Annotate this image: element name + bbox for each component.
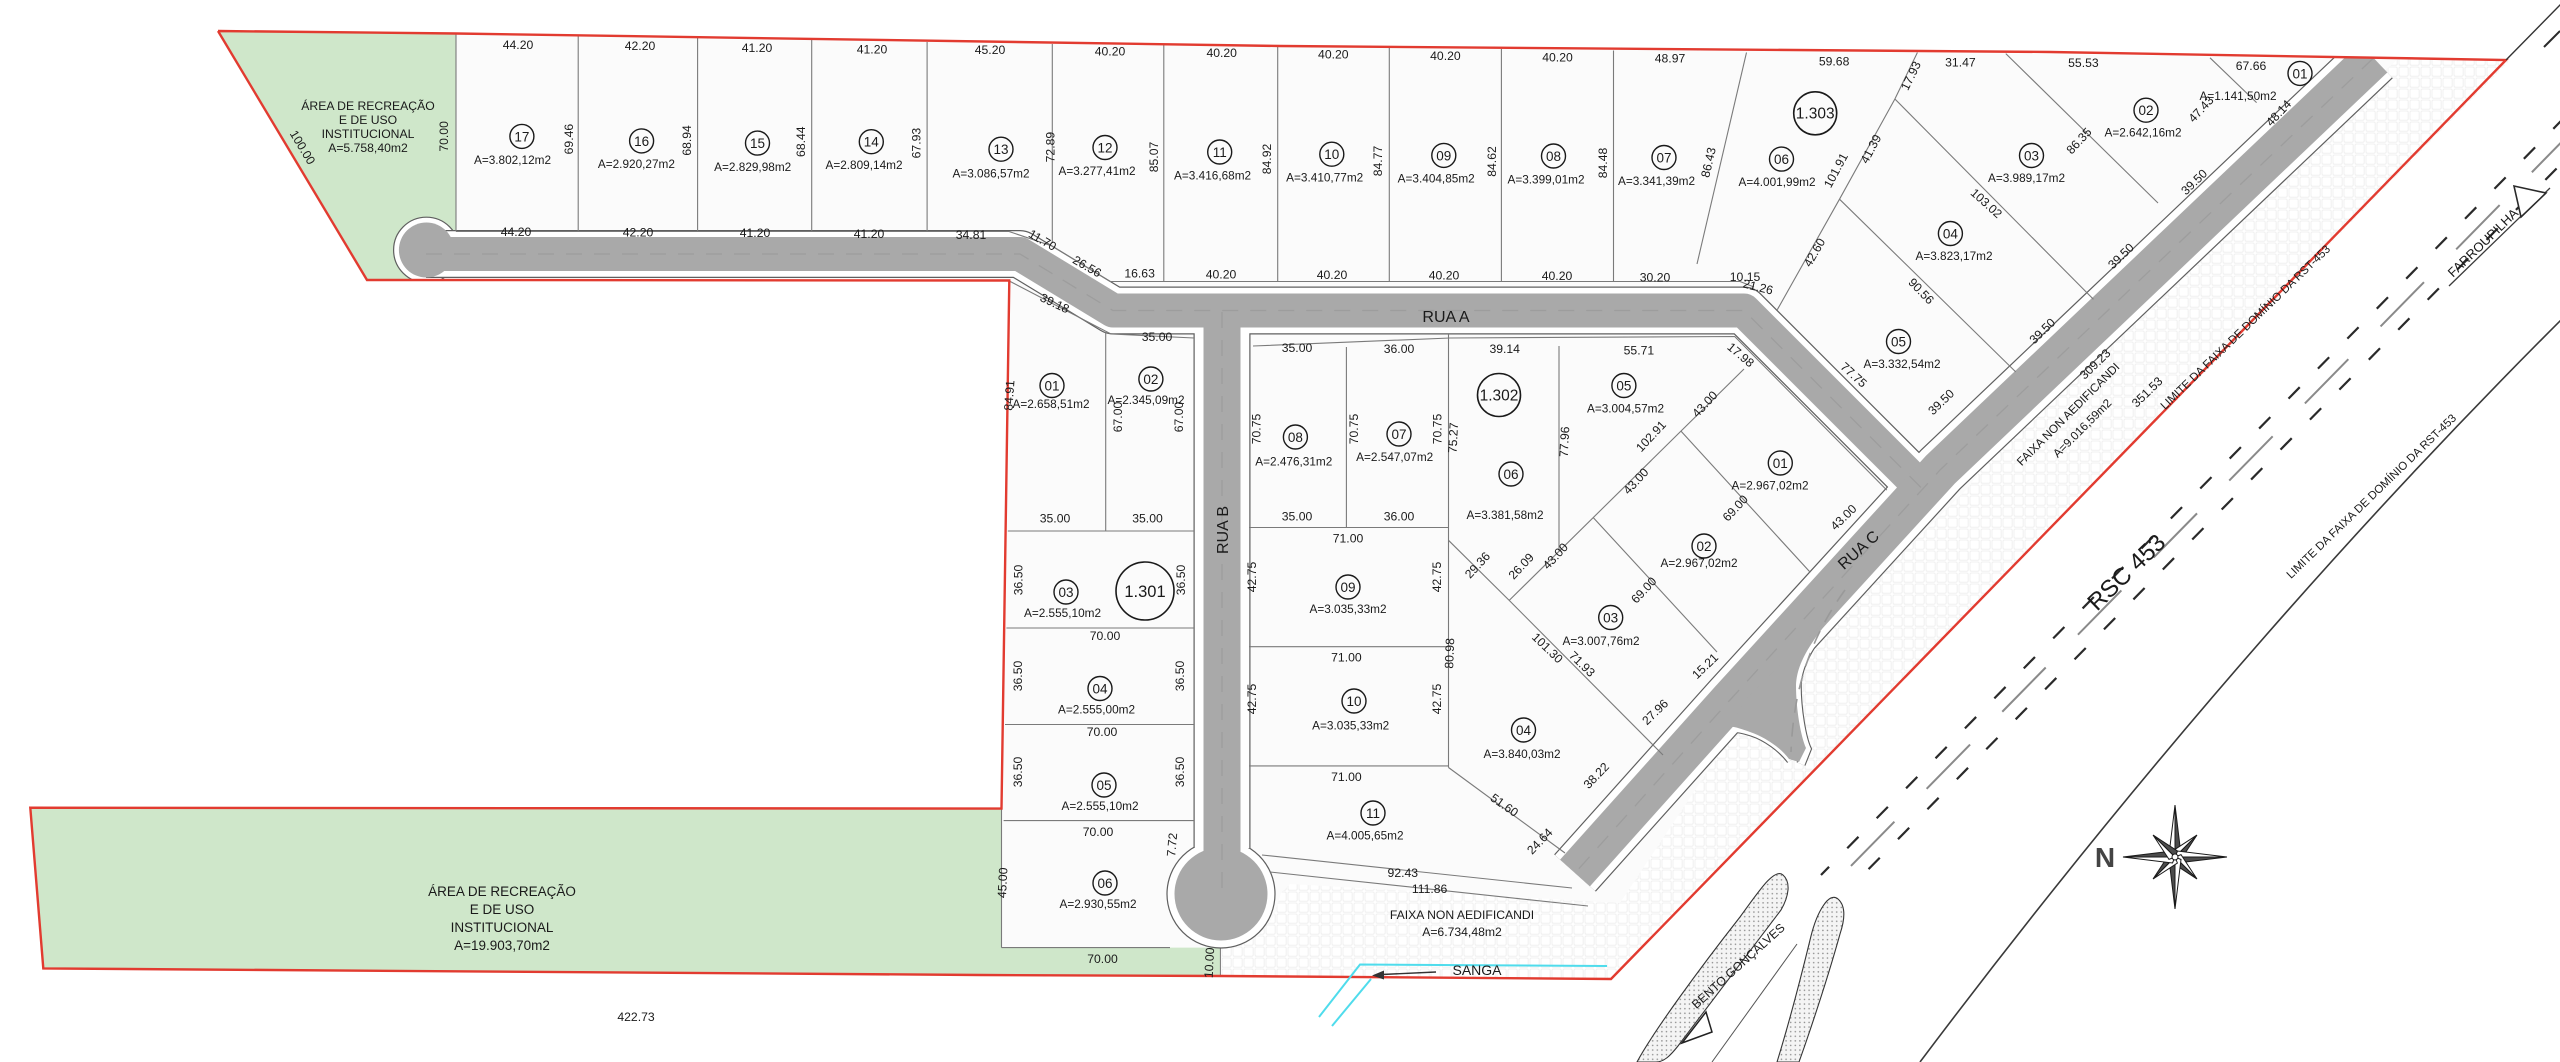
svg-text:36.50: 36.50 (1173, 757, 1187, 788)
svg-text:40.20: 40.20 (1542, 51, 1573, 65)
svg-text:72.89: 72.89 (1044, 132, 1058, 163)
svg-text:42.20: 42.20 (625, 39, 656, 53)
svg-text:42.75: 42.75 (1430, 562, 1444, 593)
svg-text:40.20: 40.20 (1206, 267, 1237, 281)
svg-text:A=2.555,10m2: A=2.555,10m2 (1024, 606, 1101, 620)
svg-text:84.92: 84.92 (1260, 144, 1274, 175)
svg-text:69.46: 69.46 (562, 124, 576, 155)
svg-text:09: 09 (1340, 580, 1355, 595)
svg-text:70.75: 70.75 (1430, 414, 1444, 445)
svg-text:41.20: 41.20 (740, 226, 771, 240)
svg-text:84.62: 84.62 (1485, 146, 1499, 177)
svg-text:67.93: 67.93 (909, 128, 923, 159)
svg-text:10.00: 10.00 (1202, 947, 1218, 978)
svg-text:A=5.758,40m2: A=5.758,40m2 (328, 141, 408, 155)
svg-text:71.00: 71.00 (1331, 651, 1362, 665)
svg-text:A=3.410,77m2: A=3.410,77m2 (1286, 170, 1363, 184)
svg-text:FAIXA NON AEDIFICANDI: FAIXA NON AEDIFICANDI (1390, 908, 1534, 922)
svg-text:A=3.381,58m2: A=3.381,58m2 (1466, 508, 1543, 522)
svg-text:02: 02 (1696, 539, 1711, 554)
svg-text:42.75: 42.75 (1430, 684, 1444, 715)
svg-text:05: 05 (1891, 334, 1906, 349)
svg-text:ÁREA DE RECREAÇÃO: ÁREA DE RECREAÇÃO (301, 98, 434, 113)
svg-text:422.73: 422.73 (617, 1010, 654, 1024)
svg-text:40.20: 40.20 (1317, 268, 1348, 282)
svg-text:E DE USO: E DE USO (339, 113, 397, 127)
svg-text:A=6.734,48m2: A=6.734,48m2 (1422, 925, 1502, 939)
svg-text:36.00: 36.00 (1384, 342, 1415, 356)
svg-text:40.20: 40.20 (1318, 47, 1349, 61)
svg-text:A=2.809,14m2: A=2.809,14m2 (825, 158, 902, 172)
svg-text:06: 06 (1503, 467, 1518, 482)
svg-text:42.75: 42.75 (1245, 684, 1259, 715)
svg-text:RUA A: RUA A (1422, 309, 1469, 326)
svg-text:92.43: 92.43 (1388, 866, 1419, 880)
svg-text:A=3.416,68m2: A=3.416,68m2 (1174, 169, 1251, 183)
svg-text:55.53: 55.53 (2068, 56, 2099, 70)
svg-text:1.302: 1.302 (1480, 387, 1519, 404)
svg-text:111.86: 111.86 (1412, 882, 1448, 896)
svg-text:36.50: 36.50 (1011, 757, 1025, 788)
svg-text:03: 03 (2024, 148, 2039, 163)
svg-text:SANGA: SANGA (1452, 962, 1502, 978)
svg-text:A=3.341,39m2: A=3.341,39m2 (1618, 174, 1695, 188)
svg-text:70.00: 70.00 (1087, 725, 1118, 739)
svg-text:7.72: 7.72 (1164, 832, 1180, 857)
svg-text:A=2.829,98m2: A=2.829,98m2 (714, 160, 791, 174)
svg-text:08: 08 (1546, 149, 1561, 164)
svg-text:14: 14 (864, 135, 880, 150)
svg-text:41.20: 41.20 (742, 41, 773, 55)
svg-text:40.20: 40.20 (1542, 269, 1573, 283)
svg-text:A=3.399,01m2: A=3.399,01m2 (1507, 173, 1584, 187)
svg-text:36.50: 36.50 (1174, 565, 1188, 596)
svg-text:11: 11 (1366, 806, 1380, 821)
svg-text:A=2.642,16m2: A=2.642,16m2 (2104, 126, 2181, 140)
svg-text:68.44: 68.44 (794, 126, 808, 157)
svg-text:09: 09 (1436, 148, 1451, 163)
svg-text:A=2.547,07m2: A=2.547,07m2 (1356, 450, 1433, 464)
svg-text:84.77: 84.77 (1371, 146, 1385, 177)
svg-text:70.00: 70.00 (1087, 952, 1118, 966)
svg-text:13: 13 (993, 142, 1008, 157)
svg-text:A=19.903,70m2: A=19.903,70m2 (454, 938, 550, 953)
svg-text:31.47: 31.47 (1945, 56, 1976, 70)
svg-text:02: 02 (1143, 372, 1158, 387)
svg-text:06: 06 (1097, 876, 1112, 891)
svg-text:A=2.930,55m2: A=2.930,55m2 (1059, 897, 1136, 911)
svg-text:A=3.277,41m2: A=3.277,41m2 (1058, 164, 1135, 178)
svg-text:67.00: 67.00 (1172, 402, 1186, 433)
svg-text:ÁREA DE RECREAÇÃO: ÁREA DE RECREAÇÃO (428, 884, 576, 899)
svg-text:A=2.555,10m2: A=2.555,10m2 (1061, 799, 1138, 813)
svg-text:11: 11 (1213, 145, 1227, 160)
svg-text:75.27: 75.27 (1446, 422, 1462, 453)
svg-text:70.00: 70.00 (437, 121, 451, 152)
svg-text:INSTITUCIONAL: INSTITUCIONAL (451, 920, 554, 935)
svg-text:15: 15 (750, 136, 765, 151)
svg-text:44.20: 44.20 (503, 38, 534, 52)
svg-text:30.20: 30.20 (1640, 271, 1671, 285)
svg-text:08: 08 (1288, 430, 1303, 445)
svg-text:34.81: 34.81 (956, 228, 987, 242)
svg-text:41.20: 41.20 (857, 43, 888, 57)
svg-text:07: 07 (1391, 427, 1406, 442)
svg-text:48.97: 48.97 (1655, 52, 1686, 66)
svg-text:85.07: 85.07 (1147, 142, 1161, 173)
svg-text:70.00: 70.00 (1090, 629, 1121, 643)
svg-text:RUA B: RUA B (1215, 506, 1232, 554)
svg-text:01: 01 (2292, 66, 2307, 81)
svg-text:35.00: 35.00 (1142, 330, 1173, 344)
svg-text:04: 04 (1092, 681, 1108, 696)
svg-text:70.00: 70.00 (1083, 825, 1114, 839)
svg-text:67.66: 67.66 (2236, 59, 2267, 73)
svg-text:40.20: 40.20 (1206, 46, 1237, 60)
svg-text:1.303: 1.303 (1796, 106, 1835, 123)
svg-text:INSTITUCIONAL: INSTITUCIONAL (322, 127, 415, 141)
svg-text:A=3.086,57m2: A=3.086,57m2 (952, 167, 1029, 181)
svg-text:01: 01 (1773, 456, 1788, 471)
svg-text:45.20: 45.20 (975, 43, 1006, 57)
svg-text:A=2.967,02m2: A=2.967,02m2 (1660, 556, 1737, 570)
svg-text:35.00: 35.00 (1282, 510, 1313, 524)
svg-text:06: 06 (1774, 152, 1789, 167)
svg-text:36.50: 36.50 (1173, 661, 1187, 692)
svg-text:71.00: 71.00 (1331, 770, 1362, 784)
svg-text:A=3.035,33m2: A=3.035,33m2 (1312, 719, 1389, 733)
svg-text:45.00: 45.00 (995, 867, 1011, 898)
svg-text:A=2.967,02m2: A=2.967,02m2 (1731, 479, 1808, 493)
svg-text:71.00: 71.00 (1333, 532, 1364, 546)
svg-text:40.20: 40.20 (1429, 269, 1460, 283)
svg-text:40.20: 40.20 (1095, 44, 1126, 58)
svg-text:A=4.005,65m2: A=4.005,65m2 (1326, 829, 1403, 843)
svg-text:A=2.658,51m2: A=2.658,51m2 (1012, 397, 1089, 411)
svg-text:01: 01 (1044, 378, 1059, 393)
svg-text:A=2.920,27m2: A=2.920,27m2 (598, 157, 675, 171)
svg-text:84.48: 84.48 (1596, 148, 1610, 179)
svg-text:55.71: 55.71 (1624, 344, 1655, 358)
svg-text:36.00: 36.00 (1384, 510, 1415, 524)
svg-text:84.91: 84.91 (1001, 380, 1017, 412)
svg-text:A=3.035,33m2: A=3.035,33m2 (1309, 602, 1386, 616)
svg-text:A=3.989,17m2: A=3.989,17m2 (1988, 171, 2065, 185)
svg-text:10: 10 (1346, 694, 1361, 709)
svg-text:N: N (2095, 842, 2115, 873)
svg-text:36.50: 36.50 (1011, 661, 1025, 692)
svg-text:39.14: 39.14 (1489, 342, 1520, 356)
svg-text:70.75: 70.75 (1347, 414, 1361, 445)
svg-text:80.98: 80.98 (1442, 638, 1457, 669)
svg-text:A=2.555,00m2: A=2.555,00m2 (1058, 703, 1135, 717)
svg-text:04: 04 (1943, 226, 1959, 241)
svg-text:07: 07 (1656, 150, 1671, 165)
svg-text:05: 05 (1096, 778, 1111, 793)
svg-text:04: 04 (1516, 723, 1532, 738)
svg-text:77.96: 77.96 (1557, 426, 1573, 457)
svg-text:A=3.004,57m2: A=3.004,57m2 (1587, 402, 1664, 416)
svg-text:17: 17 (514, 129, 529, 144)
svg-text:A=3.823,17m2: A=3.823,17m2 (1915, 249, 1992, 263)
svg-text:A=3.332,54m2: A=3.332,54m2 (1863, 357, 1940, 371)
svg-text:68.94: 68.94 (680, 125, 694, 156)
svg-text:E DE USO: E DE USO (470, 902, 535, 917)
svg-text:A=4.001,99m2: A=4.001,99m2 (1738, 175, 1815, 189)
svg-text:42.75: 42.75 (1245, 562, 1259, 593)
svg-text:A=3.802,12m2: A=3.802,12m2 (474, 153, 551, 167)
svg-text:41.20: 41.20 (854, 227, 885, 241)
svg-text:10: 10 (1324, 147, 1339, 162)
svg-text:35.00: 35.00 (1040, 512, 1071, 526)
svg-text:42.20: 42.20 (623, 226, 654, 240)
svg-text:A=2.476,31m2: A=2.476,31m2 (1255, 455, 1332, 469)
svg-text:16.63: 16.63 (1124, 266, 1155, 280)
svg-text:16: 16 (634, 134, 649, 149)
svg-text:35.00: 35.00 (1132, 512, 1163, 526)
svg-text:12: 12 (1097, 140, 1112, 155)
svg-text:36.50: 36.50 (1012, 565, 1026, 596)
svg-text:67.00: 67.00 (1111, 402, 1125, 433)
svg-text:35.00: 35.00 (1282, 341, 1313, 355)
svg-text:40.20: 40.20 (1430, 49, 1461, 63)
svg-text:05: 05 (1616, 378, 1631, 393)
svg-text:70.75: 70.75 (1250, 414, 1264, 445)
svg-text:59.68: 59.68 (1819, 54, 1850, 68)
svg-text:A=3.840,03m2: A=3.840,03m2 (1483, 747, 1560, 761)
svg-text:44.20: 44.20 (501, 225, 532, 239)
svg-text:1.301: 1.301 (1124, 583, 1165, 601)
svg-text:A=3.007,76m2: A=3.007,76m2 (1562, 634, 1639, 648)
svg-text:03: 03 (1058, 585, 1073, 600)
svg-text:02: 02 (2138, 103, 2153, 118)
svg-text:A=3.404,85m2: A=3.404,85m2 (1398, 171, 1475, 185)
svg-text:03: 03 (1603, 610, 1618, 625)
